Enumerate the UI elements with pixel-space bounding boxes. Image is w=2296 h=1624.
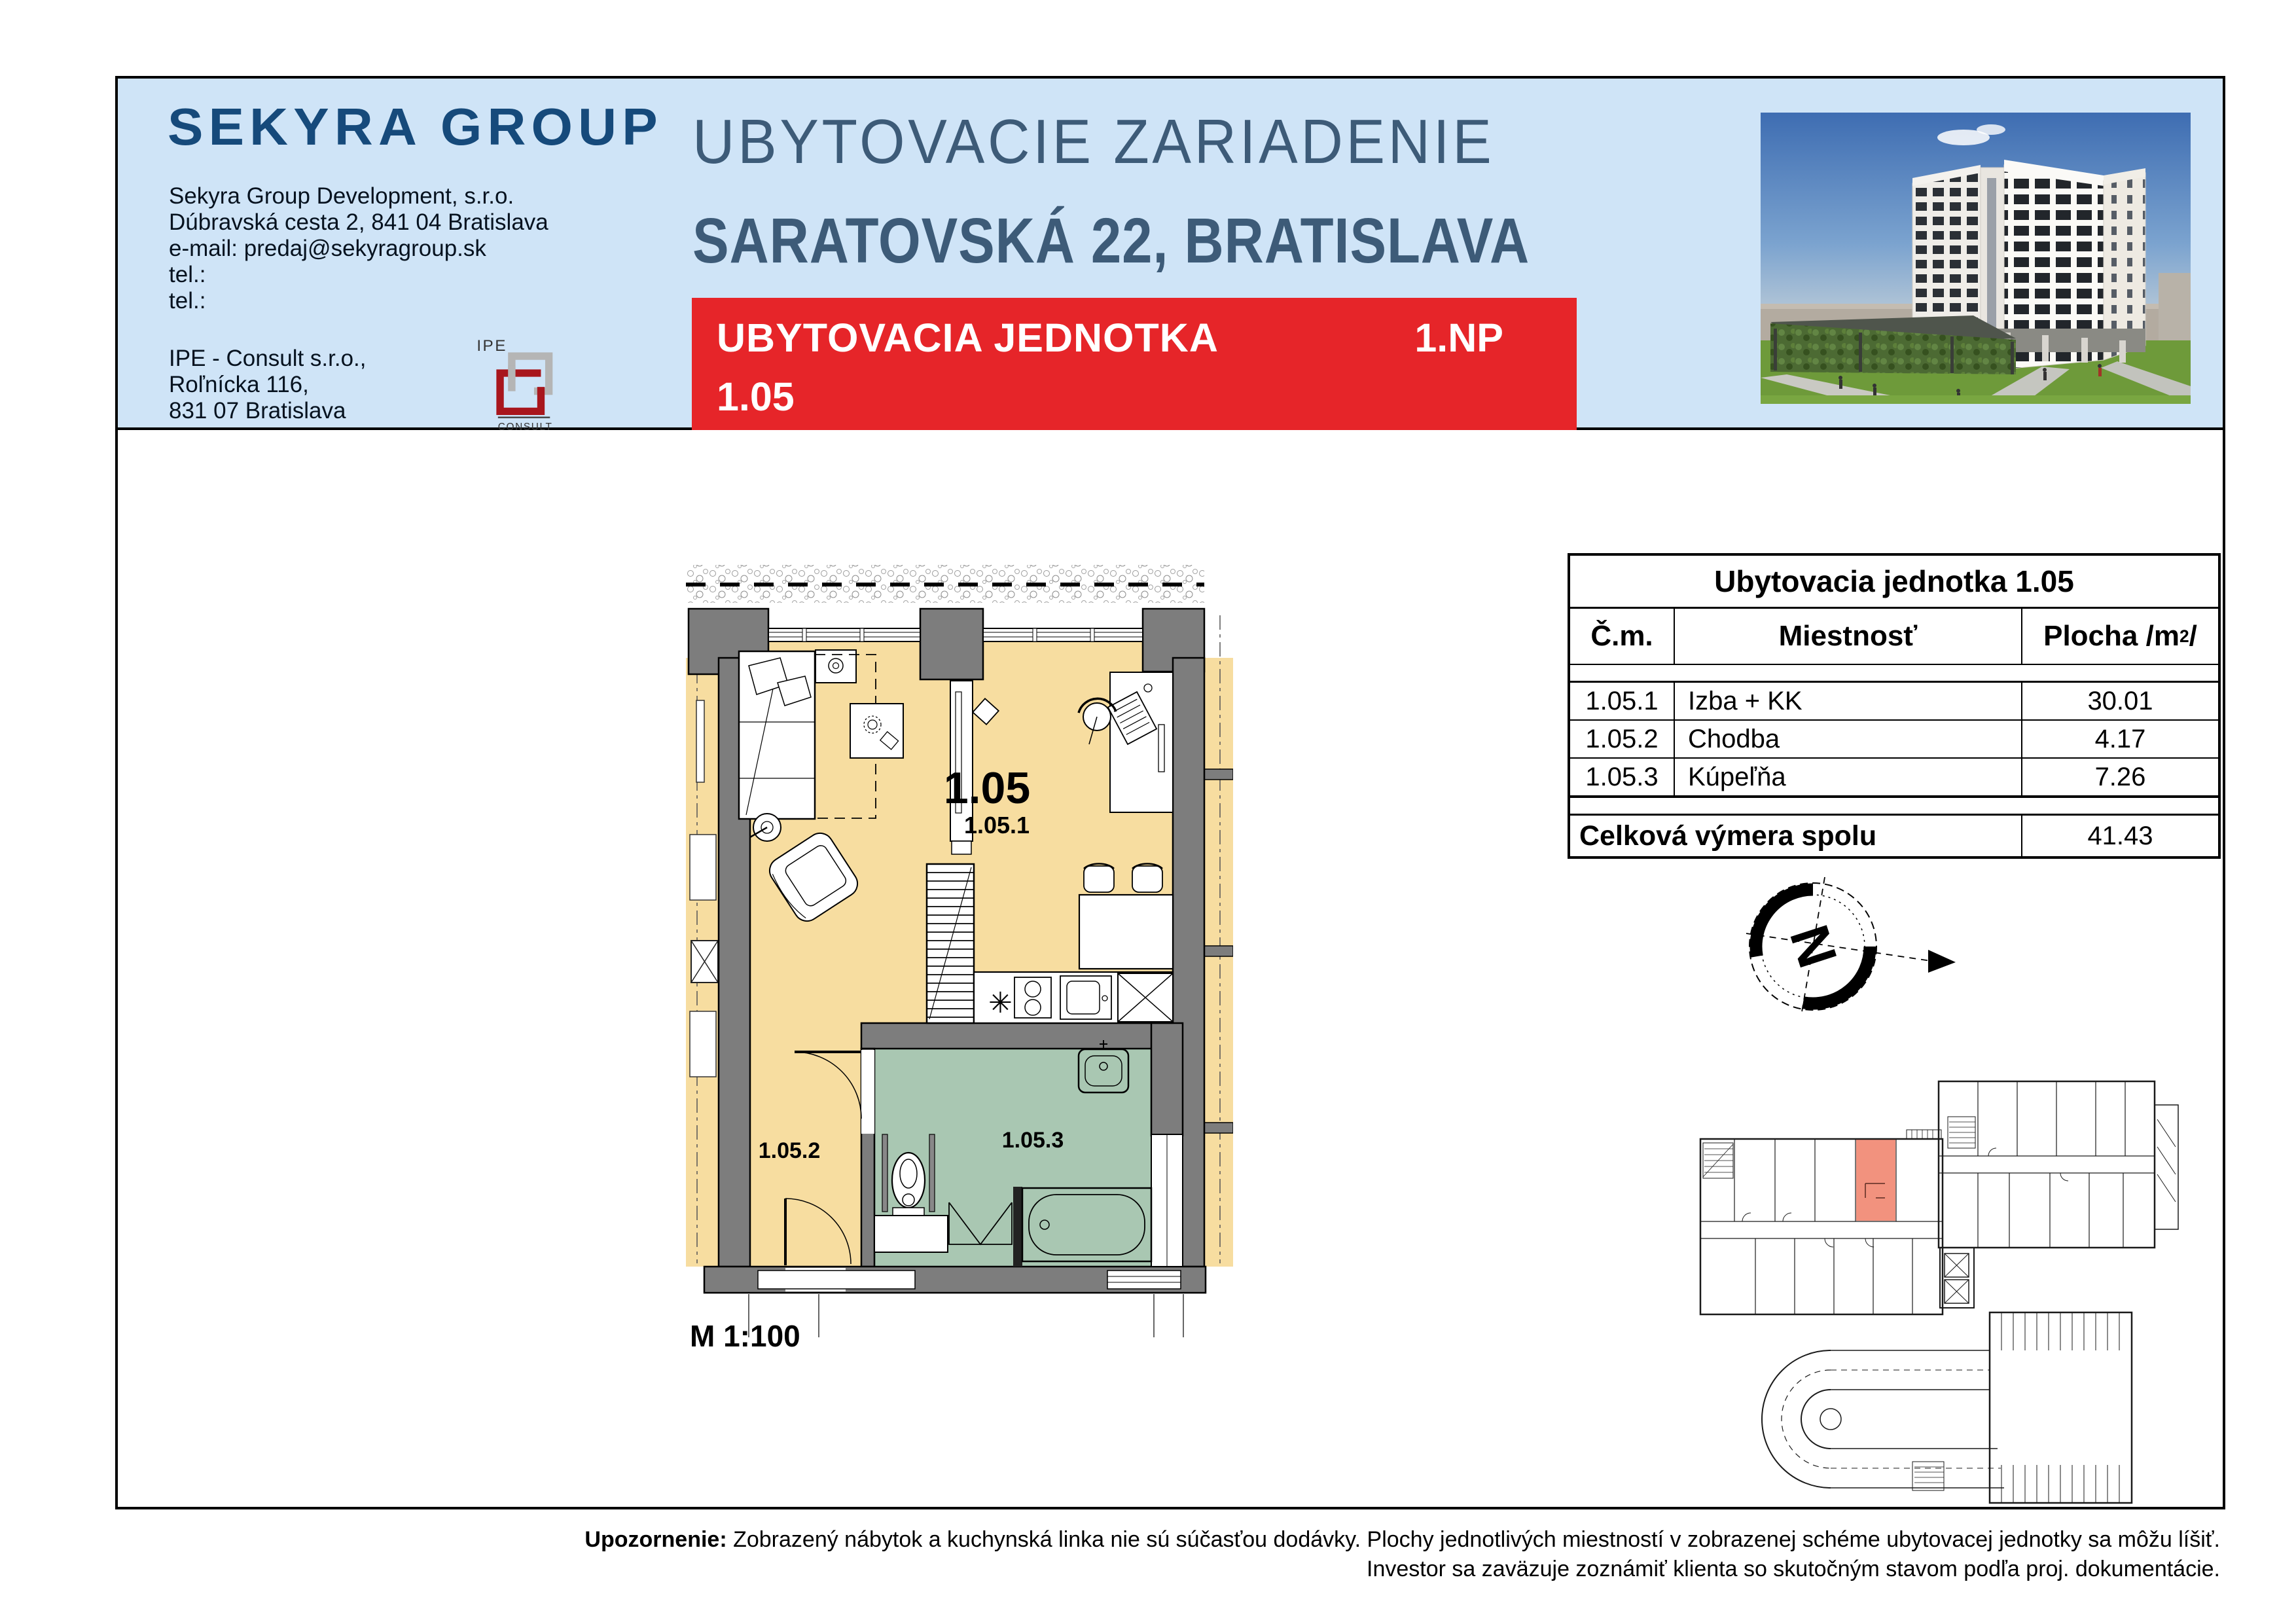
brochure-page: SEKYRA GROUP Sekyra Group Development, s…: [0, 0, 2296, 1624]
footer-line1: Upozornenie: Zobrazený nábytok a kuchyns…: [453, 1525, 2220, 1555]
dining-table: [1079, 895, 1173, 969]
company-line: Sekyra Group Development, s.r.o.: [169, 183, 548, 209]
plan-scale-note: M 1:100: [690, 1319, 800, 1353]
highlighted-unit: [1856, 1140, 1895, 1221]
wall-right-pier: [1151, 1023, 1183, 1136]
table-row: 1.05.3 Kúpeľňa 7.26: [1570, 759, 2218, 797]
cell-room-name: Chodba: [1675, 721, 2022, 757]
unit-floorplan-drawing: ✳: [686, 553, 1233, 1355]
unit-banner-unit: 1.05: [717, 374, 795, 420]
ipe-logo-bottom-label: CONSULT: [498, 422, 553, 432]
project-subtitle: SARATOVSKÁ 22, BRATISLAVA: [692, 204, 1530, 278]
dining-chair: [1132, 864, 1162, 892]
col-header-number: Č.m.: [1570, 609, 1675, 664]
unit-banner: UBYTOVACIA JEDNOTKA 1.NP 1.05: [692, 298, 1577, 430]
plan-room2-label: 1.05.2: [759, 1138, 821, 1163]
table-header-row: Č.m. Miestnosť Plocha /m2/: [1570, 609, 2218, 665]
plan-room3-label: 1.05.3: [1002, 1128, 1064, 1153]
table-row: 1.05.2 Chodba 4.17: [1570, 721, 2218, 759]
table-spacer: [1570, 797, 2218, 816]
overview-floorplan: [1696, 1079, 2220, 1507]
project-title: UBYTOVACIE ZARIADENIE: [692, 106, 1494, 178]
company-address-block: Sekyra Group Development, s.r.o. Dúbravs…: [169, 183, 548, 314]
cell-room-number: 1.05.3: [1570, 759, 1675, 795]
consultant-line: IPE - Consult s.r.o.,: [169, 346, 367, 372]
footer-warn-label: Upozornenie:: [584, 1527, 726, 1552]
table-total-row: Celková výmera spolu 41.43: [1570, 816, 2218, 856]
unit-area-table: Ubytovacia jednotka 1.05 Č.m. Miestnosť …: [1568, 553, 2221, 859]
col-header-area: Plocha /m2/: [2022, 609, 2218, 664]
dining-chair: [1084, 864, 1114, 892]
unit-banner-floor: 1.NP: [1414, 315, 1503, 361]
compass-north-letter: N: [1778, 918, 1849, 975]
bathtub: [1022, 1188, 1151, 1261]
table-row: 1.05.1 Izba + KK 30.01: [1570, 683, 2218, 721]
cell-room-area: 30.01: [2022, 683, 2218, 719]
company-line: Dúbravská cesta 2, 841 04 Bratislava: [169, 209, 548, 236]
building-render-image: [1761, 113, 2191, 404]
total-value: 41.43: [2022, 816, 2218, 856]
toilet-partition: [882, 1134, 888, 1212]
ipe-logo-top-label: IPE: [476, 337, 507, 355]
consultant-address-block: IPE - Consult s.r.o., Roľnícka 116, 831 …: [169, 346, 367, 424]
plan-unit-label: 1.05: [944, 763, 1030, 813]
cell-room-name: Izba + KK: [1675, 683, 2022, 719]
north-compass-icon: N: [1734, 863, 1970, 1039]
unit-banner-label: UBYTOVACIA JEDNOTKA: [717, 315, 1219, 361]
plan-room1-label: 1.05.1: [964, 812, 1030, 839]
wall-column: [920, 609, 983, 679]
cell-room-area: 7.26: [2022, 759, 2218, 795]
total-label: Celková výmera spolu: [1570, 816, 2022, 856]
cell-room-name: Kúpeľňa: [1675, 759, 2022, 795]
consultant-line: 831 07 Bratislava: [169, 398, 367, 424]
cell-room-number: 1.05.1: [1570, 683, 1675, 719]
company-email: e-mail: predaj@sekyragroup.sk: [169, 236, 548, 262]
bathroom-vanity: [874, 1216, 948, 1252]
cell-room-area: 4.17: [2022, 721, 2218, 757]
wall-bathroom-top: [861, 1023, 1173, 1049]
table-title: Ubytovacia jednotka 1.05: [1570, 556, 2218, 609]
company-phone: tel.:: [169, 262, 548, 288]
company-phone: tel.:: [169, 288, 548, 314]
cell-room-number: 1.05.2: [1570, 721, 1675, 757]
kitchen-line: ✳: [974, 972, 1173, 1023]
table-spacer: [1570, 665, 2218, 683]
svg-text:✳: ✳: [988, 987, 1013, 1019]
ipe-consult-logo-icon: IPE CONSULT: [466, 334, 568, 432]
footer-line2: Investor sa zaväzuje zoznámiť klienta so…: [453, 1555, 2220, 1584]
monitor: [1158, 725, 1164, 772]
toilet-partition: [929, 1134, 935, 1212]
consultant-line: Roľnícka 116,: [169, 372, 367, 398]
sekyra-group-logo: SEKYRA GROUP: [168, 97, 663, 157]
col-header-room: Miestnosť: [1675, 609, 2022, 664]
footer-disclaimer: Upozornenie: Zobrazený nábytok a kuchyns…: [453, 1525, 2220, 1584]
